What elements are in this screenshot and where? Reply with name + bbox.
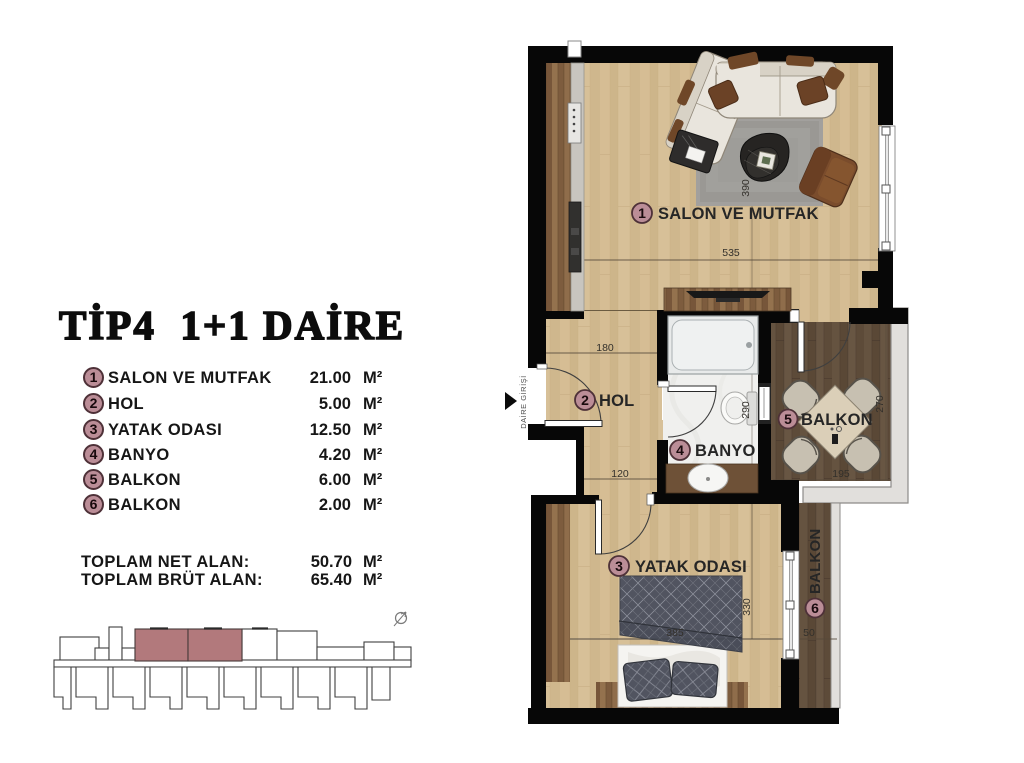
svg-text:50: 50: [803, 627, 815, 639]
svg-text:HOL: HOL: [599, 392, 634, 410]
svg-text:1: 1: [638, 205, 646, 221]
svg-text:6: 6: [811, 600, 819, 616]
svg-text:270: 270: [874, 395, 886, 413]
svg-text:120: 120: [611, 468, 629, 480]
svg-text:390: 390: [740, 179, 752, 197]
svg-text:2: 2: [581, 392, 589, 408]
svg-text:330: 330: [741, 598, 753, 616]
svg-text:195: 195: [832, 468, 850, 480]
svg-text:SALON VE MUTFAK: SALON VE MUTFAK: [658, 205, 819, 223]
svg-text:5: 5: [784, 411, 792, 427]
svg-text:535: 535: [722, 247, 740, 259]
svg-text:4: 4: [676, 442, 684, 458]
svg-text:YATAK ODASI: YATAK ODASI: [635, 558, 747, 576]
svg-text:DAİRE GİRİŞİ: DAİRE GİRİŞİ: [519, 375, 528, 429]
svg-text:180: 180: [596, 342, 614, 354]
svg-text:BANYO: BANYO: [695, 442, 756, 460]
svg-text:BALKON: BALKON: [807, 529, 824, 594]
svg-text:290: 290: [740, 401, 752, 419]
svg-text:BALKON: BALKON: [801, 411, 873, 429]
svg-text:385: 385: [666, 627, 684, 639]
svg-text:3: 3: [615, 558, 623, 574]
